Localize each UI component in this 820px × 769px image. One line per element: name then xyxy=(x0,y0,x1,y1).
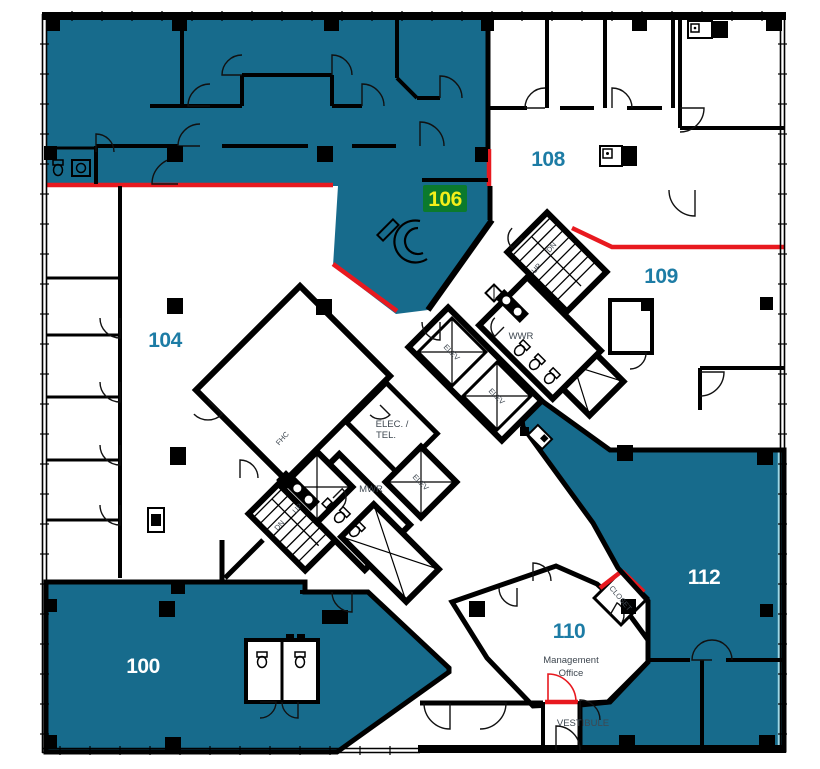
door-arc xyxy=(240,460,258,478)
column xyxy=(171,582,185,594)
elec-tel-label-line2: TEL. xyxy=(376,430,396,441)
column xyxy=(632,16,647,31)
suite-109-label: 109 xyxy=(644,265,678,288)
column xyxy=(619,735,635,750)
floor-plan-page: 100 104 106 108 109 110 112 Management O… xyxy=(0,0,820,769)
column xyxy=(324,16,339,31)
column xyxy=(159,601,175,617)
door-arc xyxy=(612,88,632,108)
suite-106-label: 106 xyxy=(428,188,462,211)
suite-108-label: 108 xyxy=(531,148,565,171)
wwr-label: WWR xyxy=(509,331,534,342)
suite-106-region[interactable] xyxy=(46,20,488,186)
kitchenette-108 xyxy=(600,146,637,166)
column xyxy=(760,604,773,617)
suite-fill-regions xyxy=(46,20,784,752)
column xyxy=(641,299,654,311)
column xyxy=(520,427,529,436)
suite-100-label: 100 xyxy=(126,655,160,678)
door-arc xyxy=(700,372,724,396)
column xyxy=(766,16,782,31)
column xyxy=(44,599,57,612)
suite-110-label: 110 xyxy=(553,620,585,643)
column xyxy=(617,445,633,461)
door-arc xyxy=(630,353,646,369)
suite-112-label: 112 xyxy=(688,566,720,589)
column xyxy=(317,146,333,162)
counter-top-right xyxy=(688,21,728,38)
door-arc xyxy=(669,190,695,216)
floor-plan-canvas: 100 104 106 108 109 110 112 Management O… xyxy=(0,0,820,769)
column xyxy=(759,735,775,750)
reception-desk xyxy=(322,610,348,624)
mwr-label: MWR xyxy=(359,484,383,495)
column xyxy=(475,147,488,162)
management-office-label-line1: Management xyxy=(543,655,599,666)
management-office-label-line2: Office xyxy=(559,668,584,679)
perimeter-top-wall xyxy=(42,12,786,20)
column xyxy=(469,601,485,617)
service-elevator-south xyxy=(341,504,439,602)
suite-104-label: 104 xyxy=(148,329,182,352)
door-arc xyxy=(424,703,450,729)
column xyxy=(172,16,187,31)
column xyxy=(297,634,305,642)
door-arc xyxy=(525,88,545,108)
column xyxy=(760,297,773,310)
conference-room xyxy=(196,286,390,480)
column xyxy=(46,16,60,31)
column xyxy=(316,299,332,315)
column xyxy=(167,146,183,162)
vestibule-label: VESTIBULE xyxy=(557,718,609,729)
column xyxy=(44,146,57,160)
column xyxy=(167,298,183,314)
door-arc xyxy=(100,382,120,402)
door-arc xyxy=(100,445,120,465)
door-arc xyxy=(480,703,506,729)
door-arc xyxy=(100,505,120,525)
suite-106-badge[interactable]: 106 xyxy=(423,185,467,212)
column xyxy=(286,634,294,642)
elec-tel-label-line1: ELEC. / xyxy=(376,419,409,430)
column xyxy=(165,737,181,751)
column xyxy=(44,735,57,748)
column xyxy=(757,449,773,465)
cabinet xyxy=(170,447,186,465)
